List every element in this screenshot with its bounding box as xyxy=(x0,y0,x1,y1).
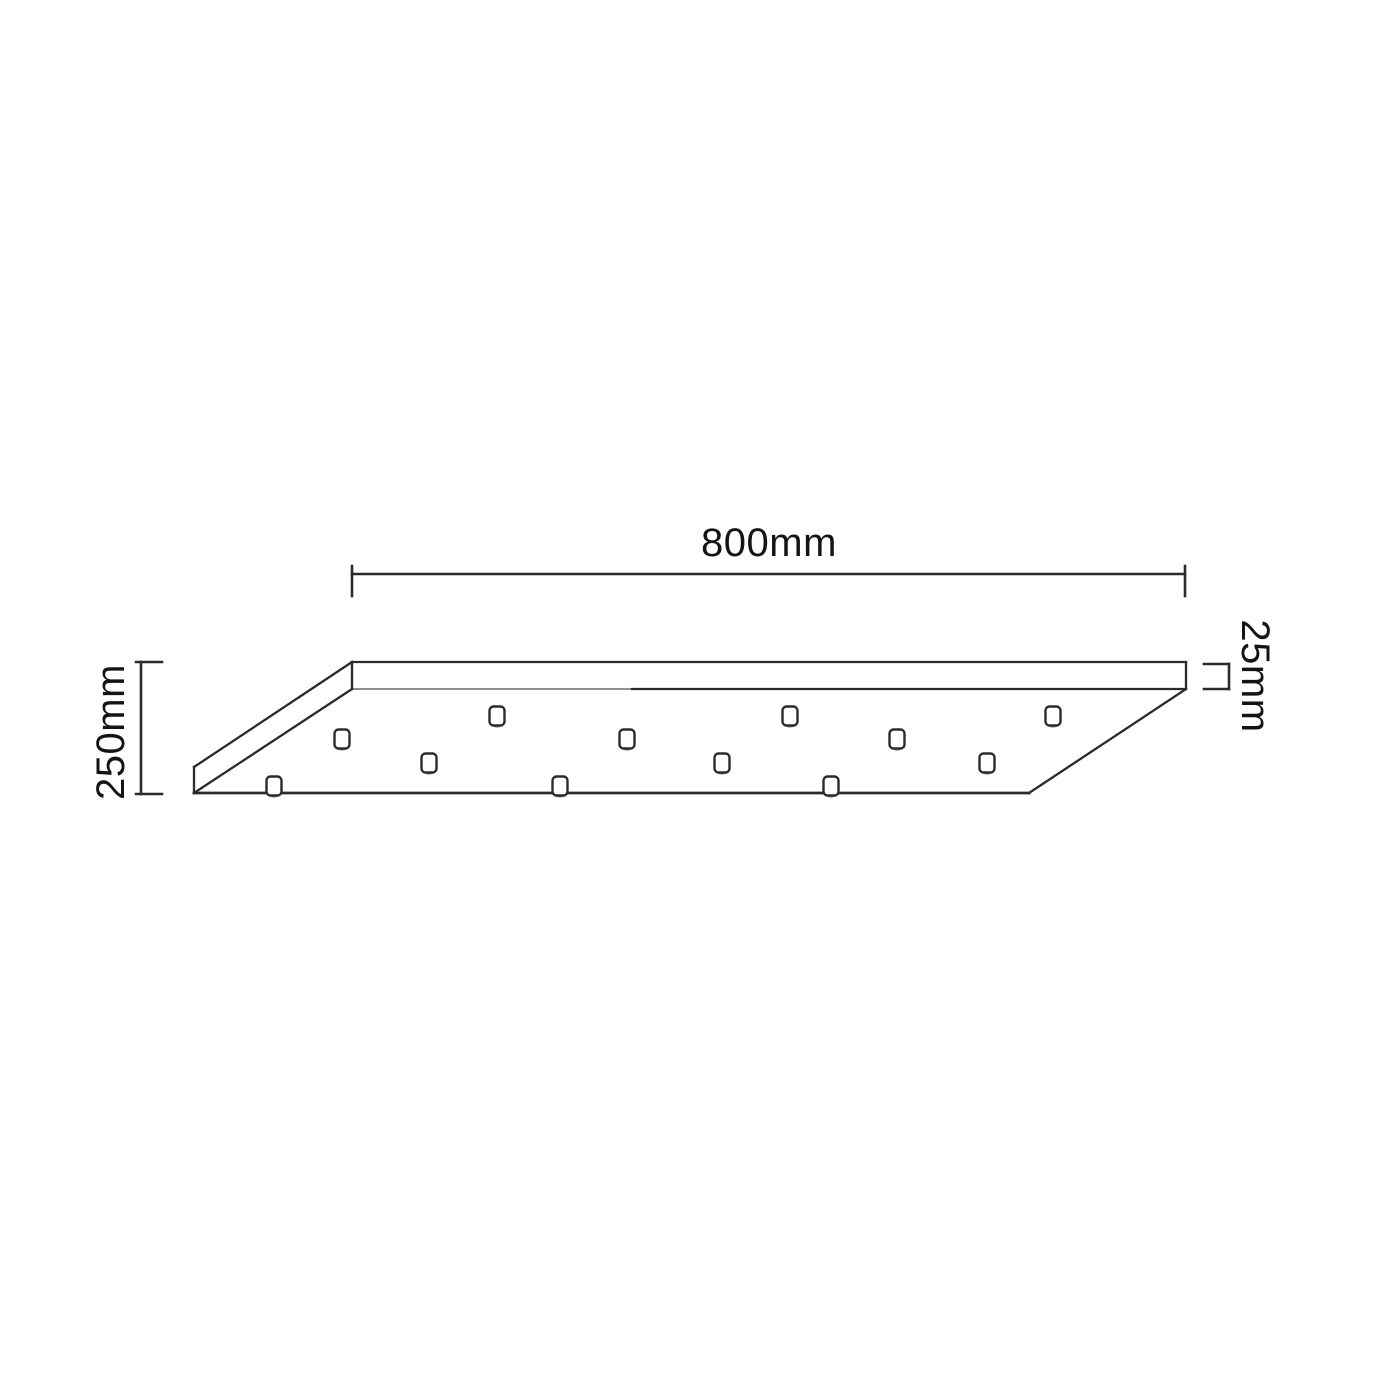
cable-hole-body xyxy=(422,754,437,773)
cable-hole xyxy=(620,730,635,750)
canvas: 800mm 250mm 25mm xyxy=(0,0,1400,1400)
cable-hole-body xyxy=(267,777,282,796)
dim-depth-label: 250mm xyxy=(89,664,133,800)
cable-hole-body xyxy=(824,777,839,796)
cable-hole-body xyxy=(980,754,995,773)
cable-hole xyxy=(267,777,282,797)
cable-hole-body xyxy=(553,777,568,796)
plate-right-slant-edge xyxy=(1029,689,1186,793)
canopy-plate xyxy=(194,662,1186,793)
cable-holes-layer xyxy=(267,707,1061,797)
cable-hole xyxy=(890,730,905,750)
cable-hole xyxy=(335,730,350,750)
dim-width-label: 800mm xyxy=(701,521,837,565)
cable-hole-body xyxy=(890,730,905,749)
cable-hole-body xyxy=(490,707,505,726)
dim-thickness-label: 25mm xyxy=(1233,619,1277,732)
cable-hole xyxy=(980,754,995,774)
plate-left-slant-upper xyxy=(194,662,352,767)
cable-hole xyxy=(783,707,798,727)
cable-hole xyxy=(715,754,730,774)
cable-hole-body xyxy=(335,730,350,749)
cable-hole xyxy=(1046,707,1061,727)
cable-hole-body xyxy=(1046,707,1061,726)
cable-hole xyxy=(824,777,839,797)
canopy-technical-drawing: 800mm 250mm 25mm xyxy=(0,0,1400,1400)
cable-hole-body xyxy=(620,730,635,749)
dim-width: 800mm xyxy=(352,521,1185,596)
cable-hole-body xyxy=(783,707,798,726)
dim-depth: 250mm xyxy=(89,662,162,800)
dim-thickness: 25mm xyxy=(1204,619,1277,732)
cable-hole xyxy=(553,777,568,797)
cable-hole xyxy=(422,754,437,774)
cable-hole xyxy=(490,707,505,727)
cable-hole-body xyxy=(715,754,730,773)
